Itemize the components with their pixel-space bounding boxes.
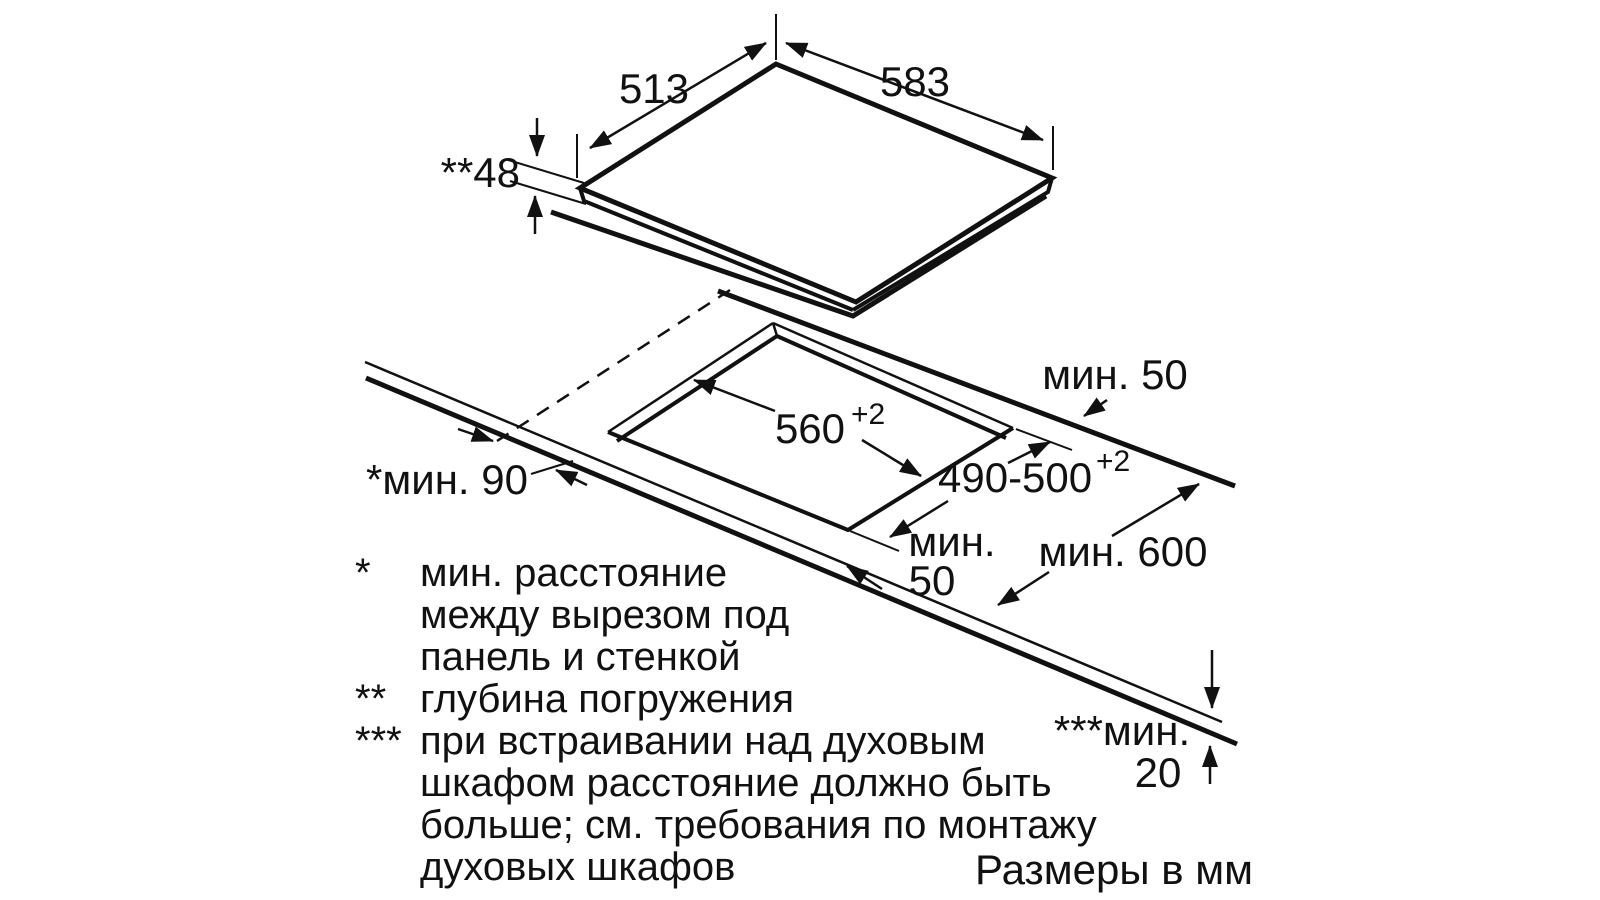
footnote-3-line-1: при встраивании над духовым <box>420 719 986 763</box>
footnote-block: * мин. расстояние между вырезом под пане… <box>355 551 1097 889</box>
cutout-depth-ext-upper <box>1016 429 1072 450</box>
footnote-marker-2: ** <box>355 677 386 721</box>
units-note: Размеры в мм <box>975 846 1253 893</box>
dim-label-submersion: **48 <box>441 149 520 196</box>
cutout-edge-upper-left <box>608 323 773 432</box>
dim-label-cutout-depth: 490-500 <box>938 454 1092 501</box>
projection-dashed-line <box>497 290 730 441</box>
dim-label-worktop-depth: мин. 600 <box>1039 528 1208 575</box>
footnote-1-line-3: панель и стенкой <box>420 635 740 679</box>
dim-arrow-560-right <box>862 440 921 476</box>
dim-label-rear-clearance: мин. 50 <box>1042 351 1188 398</box>
dim-label-wall-clearance: *мин. 90 <box>366 456 528 503</box>
installation-diagram-page: 513 583 **48 560 +2 490-500 +2 мин. 50 м… <box>0 0 1600 900</box>
dim-arrow-rear-clearance <box>1084 400 1107 416</box>
dim-label-oven-gap-value: 20 <box>1135 749 1182 796</box>
cooktop-installation-diagram: 513 583 **48 560 +2 490-500 +2 мин. 50 м… <box>0 0 1600 900</box>
dim-arrow-90-left <box>556 470 587 485</box>
footnote-marker-3: *** <box>355 719 402 763</box>
footnote-3-line-4: духовых шкафов <box>420 845 735 889</box>
footnote-3-line-2: шкафом расстояние должно быть <box>420 761 1052 805</box>
dim-label-panel-width: 583 <box>880 58 950 105</box>
footnote-1-line-1: мин. расстояние <box>420 551 727 595</box>
footnote-3-line-3: больше; см. требования по монтажу <box>420 803 1097 847</box>
dim-label-cutout-depth-tolerance: +2 <box>1096 445 1130 478</box>
footnote-marker-1: * <box>355 551 371 595</box>
cutout-depth-ext-lower <box>850 531 899 551</box>
dim-label-oven-gap-word: ***мин. <box>1054 707 1190 754</box>
dim-label-cutout-width: 560 <box>775 405 845 452</box>
footnote-1-line-2: между вырезом под <box>420 593 789 637</box>
dim-label-panel-depth: 513 <box>619 65 689 112</box>
dim-arrow-560-left <box>694 380 775 411</box>
dim-label-cutout-width-tolerance: +2 <box>851 398 885 431</box>
submersion-ref-lower <box>510 181 586 204</box>
footnote-2-line-1: глубина погружения <box>420 677 794 721</box>
dim-arrow-600-down <box>998 572 1049 605</box>
wall-clearance-ext <box>531 461 573 474</box>
dim-label-front-clearance-value: 50 <box>909 557 956 604</box>
